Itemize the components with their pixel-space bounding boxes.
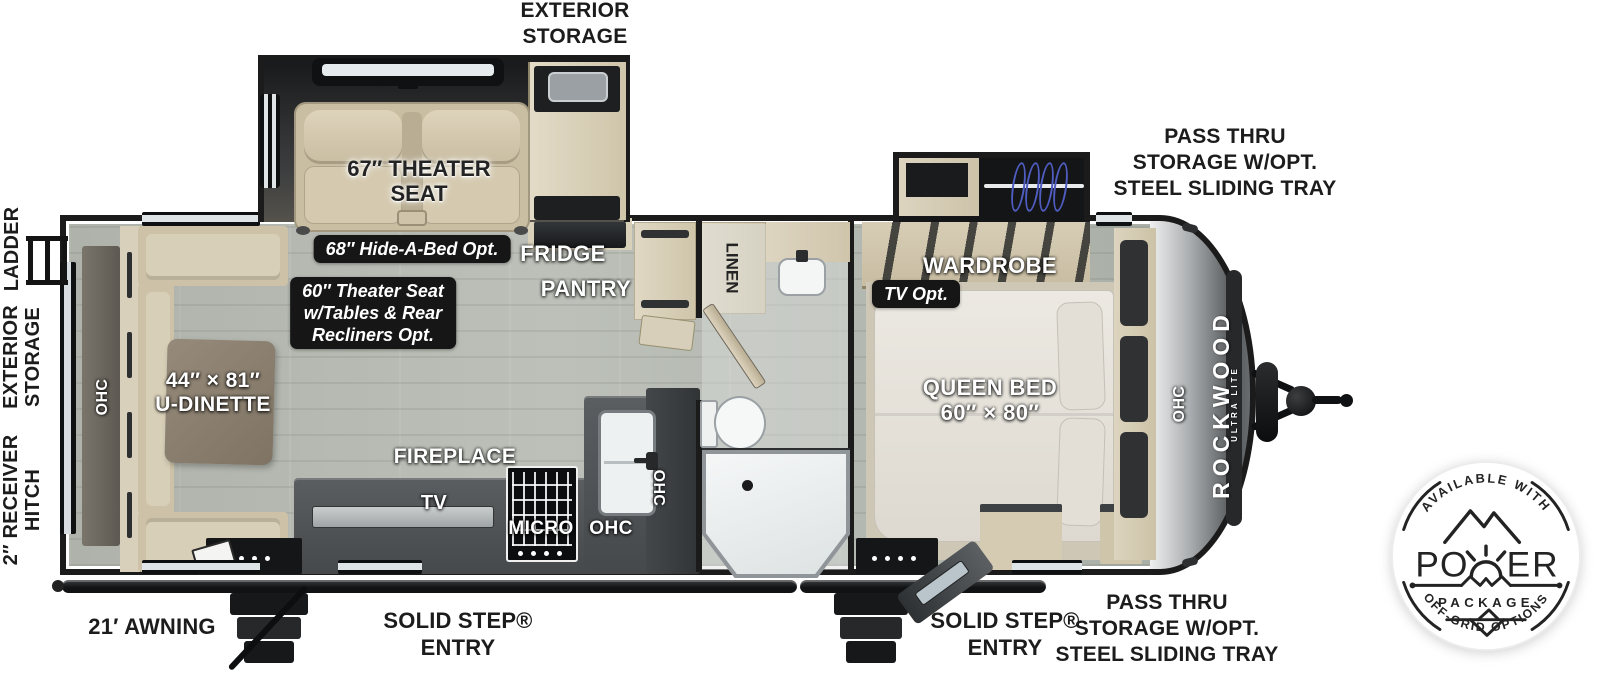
label-line: 60″ Theater Seat xyxy=(302,280,444,302)
label-line: SEAT xyxy=(347,181,490,206)
label-pass-thru-bottom: PASS THRU STORAGE W/OPT. STEEL SLIDING T… xyxy=(1056,590,1279,668)
theater-seat-foot-left xyxy=(296,226,310,235)
label-queen-bed: QUEEN BED 60″ × 80″ xyxy=(923,375,1057,425)
power-package-badge: AVAILABLE WITH P O E R PACKAGE OFF-GRID … xyxy=(1388,458,1584,654)
label-line: STEEL SLIDING TRAY xyxy=(1056,642,1279,668)
dinette-top-window xyxy=(142,212,260,226)
pantry-slot-bottom xyxy=(641,300,689,308)
power-letter: E xyxy=(1507,546,1531,585)
label-entry-left: SOLID STEP® ENTRY xyxy=(383,607,532,661)
bedroom-top-window xyxy=(1096,212,1132,226)
label-tv: TV xyxy=(421,491,447,515)
jack-handle-knob xyxy=(1340,394,1353,407)
dinette-bottom-window xyxy=(142,560,260,574)
range-knobs xyxy=(518,551,523,556)
label-ohc-kitchen-vertical: OHC xyxy=(646,470,670,507)
front-ohc-door-2 xyxy=(1120,336,1148,422)
slideout-cabinet-base xyxy=(534,196,620,220)
label-fireplace: FIREPLACE xyxy=(394,445,517,469)
label-receiver-hitch: 2″ RECEIVER HITCH xyxy=(0,435,44,566)
ladder-icon xyxy=(26,228,74,292)
entry-right-landing xyxy=(856,538,938,574)
label-line: EXTERIOR xyxy=(521,0,630,24)
label-line: 44″ × 81″ xyxy=(155,369,271,393)
label-line: STORAGE xyxy=(521,24,630,50)
front-ohc-door-3 xyxy=(1120,432,1148,518)
label-u-dinette: 44″ × 81″ U-DINETTE xyxy=(155,369,271,417)
label-line: U-DINETTE xyxy=(155,393,271,417)
ladder-rung-3 xyxy=(62,236,67,285)
badge-package-text: PACKAGE xyxy=(1438,595,1534,610)
pillow-top xyxy=(1056,301,1106,411)
theater-seat-tab xyxy=(397,210,427,226)
awning-rail-left xyxy=(62,580,797,593)
awning-end-knob xyxy=(52,580,64,592)
bath-wall-left-upper xyxy=(696,221,702,318)
label-line: STEEL SLIDING TRAY xyxy=(1114,176,1337,202)
brand-logo: ROCKWOOD ULTRA LITE xyxy=(1214,309,1242,499)
step-tread xyxy=(846,641,896,663)
label-line: w/Tables & Rear xyxy=(302,302,444,324)
ladder-rung-2 xyxy=(45,236,50,285)
theater-seat-foot-right xyxy=(514,226,528,235)
sink-faucet-spout xyxy=(634,458,648,463)
label-line: SOLID STEP® xyxy=(930,607,1079,634)
label-line: 60″ × 80″ xyxy=(923,400,1057,425)
label-ohc-kitchen: OHC xyxy=(589,517,632,541)
label-ohc-front: OHC xyxy=(1168,386,1192,423)
bedroom-bottom-window xyxy=(1012,560,1082,574)
label-line: HITCH xyxy=(22,435,44,566)
slideout-side-window xyxy=(260,94,280,188)
dinette-cushion-top xyxy=(146,234,280,280)
label-pass-thru-top: PASS THRU STORAGE W/OPT. STEEL SLIDING T… xyxy=(1114,124,1337,202)
dinette-back-slot-1 xyxy=(127,252,132,298)
power-letter: O xyxy=(1440,546,1467,585)
label-line: ENTRY xyxy=(383,634,532,661)
label-line: EXTERIOR xyxy=(0,305,22,409)
label-line: 67″ THEATER xyxy=(347,156,490,181)
label-theater-seat: 67″ THEATER SEAT xyxy=(347,156,490,206)
power-letter: P xyxy=(1415,546,1439,585)
label-micro: MICRO xyxy=(508,517,573,541)
shower-pan-inner xyxy=(706,454,846,574)
label-ladder: LADDER xyxy=(0,207,25,292)
step-tread xyxy=(840,617,902,639)
label-wardrobe: WARDROBE xyxy=(923,254,1057,278)
range-cooktop xyxy=(506,466,578,562)
label-pantry: PANTRY xyxy=(541,277,631,301)
label-line: PASS THRU xyxy=(1056,590,1279,616)
entry-steps-left xyxy=(230,593,310,665)
label-exterior-storage-top: EXTERIOR STORAGE xyxy=(521,0,630,50)
bath-sink-counter xyxy=(766,222,850,262)
tv-shelf xyxy=(312,506,494,528)
dinette-back-slot-4 xyxy=(127,492,132,538)
option-hide-a-bed: 68″ Hide-A-Bed Opt. xyxy=(314,235,511,263)
label-line: SOLID STEP® xyxy=(383,607,532,634)
power-letter: R xyxy=(1532,546,1557,585)
label-line: STORAGE W/OPT. xyxy=(1056,616,1279,642)
label-exterior-storage-side: EXTERIOR STORAGE xyxy=(0,305,44,409)
dinette-back-slot-3 xyxy=(127,412,132,458)
label-fridge: FRIDGE xyxy=(520,242,606,266)
label-line: ENTRY xyxy=(930,634,1079,661)
wardrobe-shelf-opening xyxy=(906,163,968,197)
label-line: PASS THRU xyxy=(1114,124,1337,150)
wardrobe-shelf xyxy=(899,158,979,216)
entry-right-step-lights xyxy=(872,556,877,561)
slideout-top-window-glass xyxy=(322,64,494,76)
shower-pan xyxy=(702,450,850,578)
slideout-cabinet-tray xyxy=(548,72,608,102)
option-theater-seat: 60″ Theater Seat w/Tables & Rear Recline… xyxy=(290,277,456,349)
pantry-lower-wedge xyxy=(638,315,695,351)
ladder-rung-1 xyxy=(28,236,33,285)
label-ohc-rear: OHC xyxy=(91,379,115,416)
label-awning: 21′ AWNING xyxy=(88,614,215,640)
shower-drain xyxy=(742,480,753,491)
kitchen-bottom-window xyxy=(338,560,422,574)
label-entry-right: SOLID STEP® ENTRY xyxy=(930,607,1079,661)
dinette-bench-top xyxy=(138,226,288,286)
bath-faucet xyxy=(796,250,808,262)
pantry-slot-top xyxy=(641,230,689,238)
slideout-top-window xyxy=(312,58,504,86)
bath-sink-basin xyxy=(778,258,826,296)
floorplan-canvas: AVAILABLE WITH P O E R PACKAGE OFF-GRID … xyxy=(0,0,1600,674)
front-ohc-door-1 xyxy=(1120,240,1148,326)
jack-handle xyxy=(1312,396,1342,404)
label-line: STORAGE xyxy=(22,305,44,409)
brand-name: ROCKWOOD xyxy=(1214,309,1228,499)
label-line: STORAGE W/OPT. xyxy=(1114,150,1337,176)
tongue-jack xyxy=(1256,362,1278,442)
label-line: Recliners Opt. xyxy=(302,324,444,346)
option-tv: TV Opt. xyxy=(872,280,960,308)
label-linen: LINEN xyxy=(720,243,745,294)
slideout-window-latch xyxy=(398,82,418,89)
label-line: QUEEN BED xyxy=(923,375,1057,400)
entry-steps-right xyxy=(834,593,910,673)
label-line: 2″ RECEIVER xyxy=(0,435,22,566)
rear-window xyxy=(60,262,76,534)
dinette-back-slot-2 xyxy=(127,332,132,378)
pillow-bottom xyxy=(1056,417,1106,527)
